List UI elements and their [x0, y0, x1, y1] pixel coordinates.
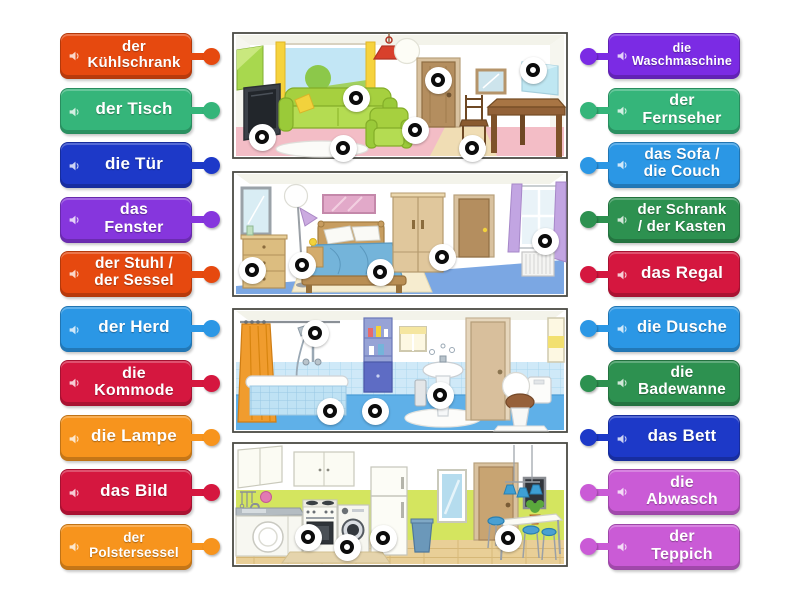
connector-dot [580, 157, 597, 174]
bedroom-mirror [242, 188, 270, 234]
answer-marker-dresser[interactable] [239, 257, 266, 284]
connector-stub [595, 216, 610, 223]
connector-stub [595, 162, 610, 169]
connector-stub [595, 325, 610, 332]
word-label-text: das Regal [641, 264, 723, 282]
under-counter-washer-door [253, 522, 283, 552]
word-label-text: der Teppich [651, 528, 713, 562]
bedroom-door [454, 195, 494, 257]
activity-canvas: der Kühlschrankder Tischdie Türdas Fenst… [0, 0, 800, 600]
marker-ring [323, 404, 337, 418]
connector-dot [203, 429, 220, 446]
speaker-icon[interactable] [68, 431, 81, 444]
marker-ring [465, 141, 479, 155]
marker-ring [376, 531, 390, 545]
marker-ring [435, 250, 449, 264]
marker-ring [336, 141, 350, 155]
word-label-text: die Kommode [94, 365, 174, 399]
speaker-icon[interactable] [68, 159, 81, 172]
connector-dot [203, 266, 220, 283]
word-label-kuehlschrank[interactable]: der Kühlschrank [60, 33, 192, 79]
speaker-icon[interactable] [68, 50, 81, 63]
word-label-tisch[interactable]: der Tisch [60, 88, 192, 134]
answer-marker-fridge[interactable] [370, 525, 397, 552]
answer-marker-washing-machine[interactable] [334, 534, 361, 561]
speaker-icon[interactable] [616, 213, 629, 226]
word-label-text: der Herd [98, 318, 170, 336]
bathroom-shelf [364, 318, 392, 392]
bathroom-illustration [233, 309, 567, 432]
marker-ring [349, 91, 363, 105]
connector-stub [595, 543, 610, 550]
speaker-icon[interactable] [68, 213, 81, 226]
marker-ring [255, 130, 269, 144]
word-label-text: das Fenster [104, 201, 163, 235]
word-label-text: das Sofa / die Couch [644, 147, 721, 180]
answer-marker-rug[interactable] [330, 135, 357, 162]
answer-marker-tv[interactable] [249, 124, 276, 151]
connector-stub [595, 53, 610, 60]
word-label-abwasch[interactable]: die Abwasch [608, 469, 740, 515]
connector-dot [580, 375, 597, 392]
marker-ring [408, 123, 422, 137]
word-label-tuer[interactable]: die Tür [60, 142, 192, 188]
oven-mitt [261, 492, 272, 503]
marker-ring [308, 326, 322, 340]
marker-ring [433, 388, 447, 402]
upper-cabinets [238, 446, 354, 488]
living-room-illustration [233, 33, 567, 158]
sink-counter [236, 504, 304, 556]
word-label-text: die Tür [105, 155, 163, 173]
bathroom-right-window [548, 318, 564, 362]
word-label-regal[interactable]: das Regal [608, 251, 740, 297]
connector-dot [580, 538, 597, 555]
speaker-icon[interactable] [616, 486, 629, 499]
connector-dot [580, 429, 597, 446]
answer-marker-sink[interactable] [427, 382, 454, 409]
speaker-icon[interactable] [616, 268, 629, 281]
answer-marker-stove[interactable] [295, 524, 322, 551]
answer-marker-armchair[interactable] [402, 117, 429, 144]
marker-ring [245, 263, 259, 277]
word-label-text: der Polstersessel [89, 531, 179, 560]
word-label-text: das Bild [100, 482, 168, 500]
answer-marker-bed[interactable] [367, 259, 394, 286]
word-label-fernseher[interactable]: der Fernseher [608, 88, 740, 134]
connector-dot [580, 102, 597, 119]
word-label-text: der Fernseher [642, 92, 721, 126]
answer-marker-bathtub[interactable] [317, 398, 344, 425]
marker-ring [538, 234, 552, 248]
word-label-text: der Tisch [95, 100, 172, 118]
green-painting [237, 46, 263, 90]
pink-picture [323, 195, 375, 213]
bedside-lamp [310, 239, 317, 246]
word-label-badewanne[interactable]: die Badewanne [608, 360, 740, 406]
word-label-stuhl-sessel[interactable]: der Stuhl / der Sessel [60, 251, 192, 297]
answer-marker-shelf[interactable] [362, 398, 389, 425]
connector-dot [580, 48, 597, 65]
marker-ring [373, 265, 387, 279]
connector-dot [580, 484, 597, 501]
word-label-bild[interactable]: das Bild [60, 469, 192, 515]
radiator [522, 252, 554, 276]
marker-ring [526, 63, 540, 77]
marker-ring [340, 540, 354, 554]
marker-ring [368, 404, 382, 418]
connector-dot [203, 211, 220, 228]
connector-dot [203, 320, 220, 337]
answer-marker-chair[interactable] [459, 135, 486, 162]
connector-stub [595, 107, 610, 114]
word-label-teppich[interactable]: der Teppich [608, 524, 740, 570]
speaker-icon[interactable] [68, 486, 81, 499]
speaker-icon[interactable] [68, 268, 81, 281]
connector-stub [595, 271, 610, 278]
word-label-text: der Stuhl / der Sessel [94, 256, 174, 289]
speaker-icon[interactable] [616, 322, 629, 335]
answer-marker-wardrobe[interactable] [429, 244, 456, 271]
word-label-text: die Dusche [637, 319, 727, 337]
connector-dot [203, 538, 220, 555]
speaker-icon[interactable] [68, 104, 81, 117]
connector-stub [595, 434, 610, 441]
word-label-text: die Badewanne [638, 365, 726, 398]
connector-dot [580, 211, 597, 228]
connector-dot [203, 157, 220, 174]
word-label-fenster[interactable]: das Fenster [60, 197, 192, 243]
speaker-icon[interactable] [616, 104, 629, 117]
word-label-lampe[interactable]: die Lampe [60, 415, 192, 461]
word-label-polstersessel[interactable]: der Polstersessel [60, 524, 192, 570]
word-label-sofa-couch[interactable]: das Sofa / die Couch [608, 142, 740, 188]
answer-marker-window[interactable] [532, 228, 559, 255]
kitchen-window [438, 470, 466, 522]
answer-marker-table[interactable] [495, 525, 522, 552]
speaker-icon[interactable] [68, 322, 81, 335]
word-label-kommode[interactable]: die Kommode [60, 360, 192, 406]
speaker-icon[interactable] [616, 50, 629, 63]
bathroom-bin [415, 380, 426, 406]
word-label-bett[interactable]: das Bett [608, 415, 740, 461]
answer-marker-shower[interactable] [302, 320, 329, 347]
answer-marker-sofa[interactable] [343, 85, 370, 112]
marker-ring [431, 73, 445, 87]
word-label-text: der Kühlschrank [87, 39, 180, 71]
word-label-dusche[interactable]: die Dusche [608, 306, 740, 352]
bathroom-door [466, 318, 510, 420]
speaker-icon[interactable] [68, 377, 81, 390]
connector-dot [203, 375, 220, 392]
speaker-icon[interactable] [616, 377, 629, 390]
marker-ring [295, 258, 309, 272]
bedroom-illustration [233, 172, 567, 296]
wall-mirror [477, 70, 505, 93]
word-label-waschmaschine[interactable]: die Waschmaschine [608, 33, 740, 79]
answer-marker-door[interactable] [425, 67, 452, 94]
marker-ring [501, 531, 515, 545]
word-label-text: die Lampe [91, 427, 177, 445]
marker-ring [301, 530, 315, 544]
connector-dot [203, 484, 220, 501]
connector-dot [580, 320, 597, 337]
connector-dot [580, 266, 597, 283]
speaker-icon[interactable] [616, 159, 629, 172]
bathroom-window [400, 327, 426, 351]
trash-bin [411, 519, 433, 552]
word-label-herd[interactable]: der Herd [60, 306, 192, 352]
word-label-text: die Abwasch [646, 474, 718, 508]
word-label-text: die Waschmaschine [632, 42, 732, 69]
speaker-icon[interactable] [616, 431, 629, 444]
connector-dot [203, 48, 220, 65]
connector-stub [595, 380, 610, 387]
speaker-icon[interactable] [68, 540, 81, 553]
answer-marker-picture[interactable] [520, 57, 547, 84]
word-label-text: das Bett [648, 427, 717, 445]
word-label-text: der Schrank / der Kasten [638, 202, 727, 234]
connector-dot [203, 102, 220, 119]
speaker-icon[interactable] [616, 540, 629, 553]
answer-marker-floor-lamp[interactable] [289, 252, 316, 279]
word-label-schrank-kasten[interactable]: der Schrank / der Kasten [608, 197, 740, 243]
connector-stub [595, 489, 610, 496]
